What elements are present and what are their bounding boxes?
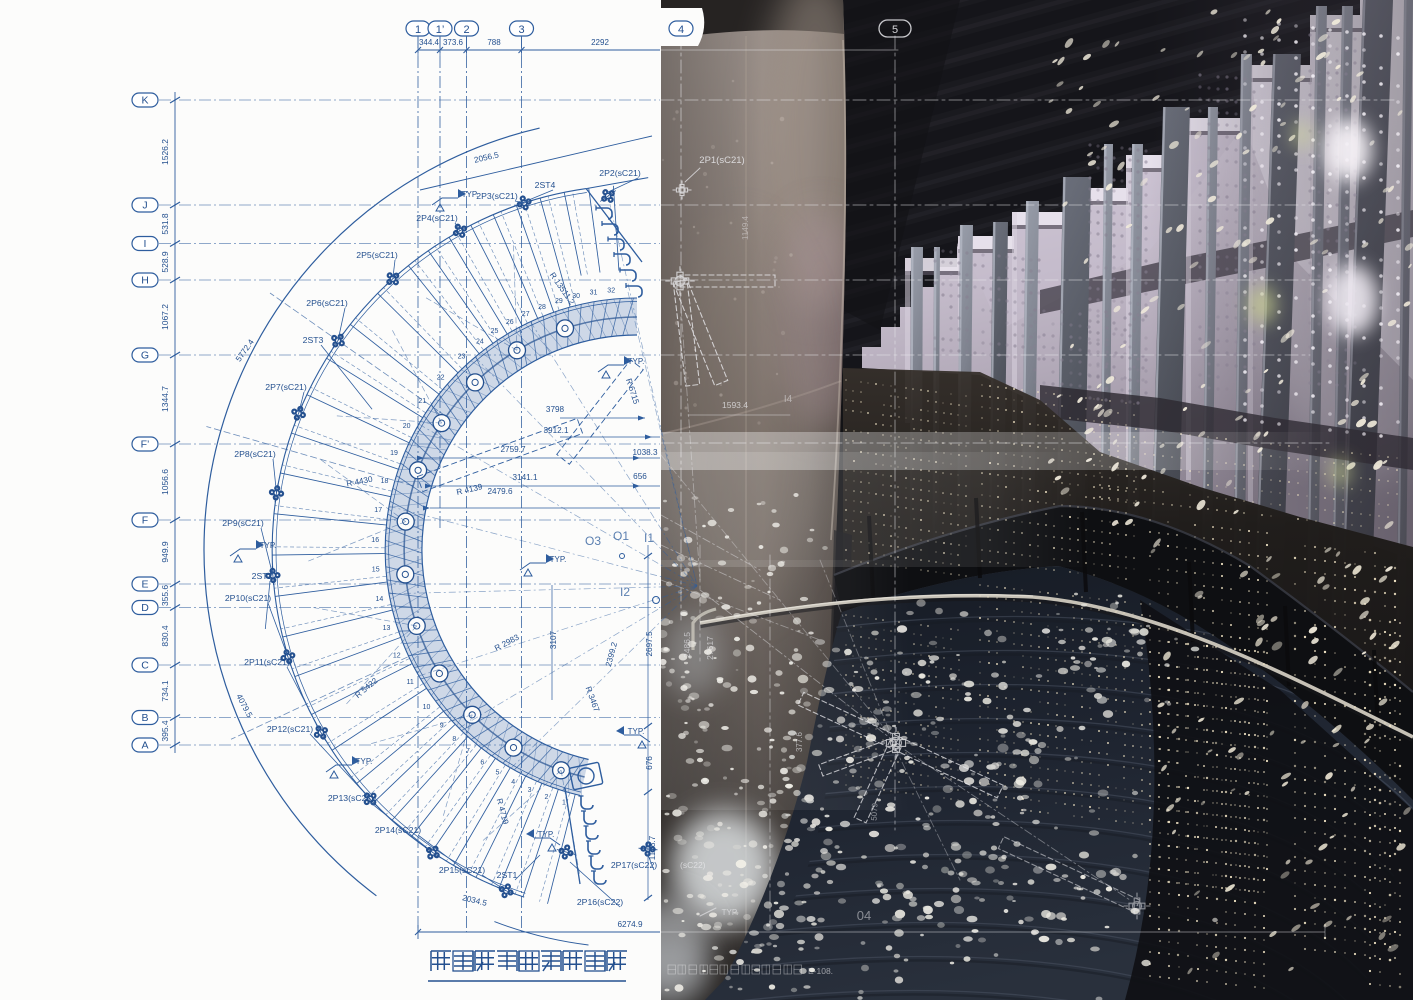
svg-text:2P9(sC21): 2P9(sC21) — [222, 518, 264, 528]
svg-text:1067.2: 1067.2 — [160, 304, 170, 330]
svg-text:(sC22): (sC22) — [680, 860, 706, 870]
svg-text:11: 11 — [407, 679, 414, 686]
svg-text:2P15(sC21): 2P15(sC21) — [439, 865, 485, 875]
svg-text:2P10(sC21): 2P10(sC21) — [225, 593, 271, 603]
svg-text:734.1: 734.1 — [160, 680, 170, 702]
svg-text:I2: I2 — [620, 585, 630, 599]
svg-text:25: 25 — [491, 328, 499, 335]
svg-text:28: 28 — [538, 304, 546, 311]
svg-text:23: 23 — [458, 353, 466, 360]
svg-text:2697.5: 2697.5 — [645, 631, 654, 656]
svg-text:1056.6: 1056.6 — [160, 469, 170, 495]
svg-text:O1: O1 — [613, 529, 629, 543]
svg-text:18: 18 — [381, 478, 389, 485]
svg-text:2P11(sC21): 2P11(sC21) — [244, 657, 290, 667]
svg-text:2ST2: 2ST2 — [252, 571, 273, 581]
svg-text:1593.4: 1593.4 — [722, 400, 748, 410]
svg-text:2P13(sC21): 2P13(sC21) — [328, 793, 374, 803]
svg-text:K: K — [141, 95, 148, 107]
svg-text:6274.9: 6274.9 — [617, 920, 642, 929]
svg-text:2ST3: 2ST3 — [303, 335, 324, 345]
svg-text:6: 6 — [480, 759, 484, 766]
svg-text:2P8(sC21): 2P8(sC21) — [234, 449, 276, 459]
svg-text:656: 656 — [633, 472, 647, 481]
svg-text:22: 22 — [437, 375, 445, 382]
svg-text:I1: I1 — [644, 531, 654, 545]
svg-text:2479.6: 2479.6 — [487, 487, 512, 496]
svg-text:TYP.: TYP. — [722, 908, 739, 917]
svg-text:D: D — [141, 602, 149, 614]
svg-text:TYP.: TYP. — [628, 727, 645, 736]
svg-text:TYP.: TYP. — [462, 190, 479, 199]
svg-text:355.6: 355.6 — [160, 585, 170, 607]
svg-text:2486.5: 2486.5 — [682, 632, 692, 658]
svg-text:04: 04 — [857, 908, 871, 923]
svg-text:2ST1: 2ST1 — [497, 870, 518, 880]
svg-text:1’: 1’ — [436, 24, 445, 36]
svg-text:3141.1: 3141.1 — [512, 473, 537, 482]
svg-text:J: J — [142, 200, 147, 212]
svg-text:B: B — [141, 712, 148, 724]
svg-text:26: 26 — [506, 319, 514, 326]
svg-text:C: C — [141, 660, 149, 672]
svg-text:2P7(sC21): 2P7(sC21) — [265, 382, 307, 392]
svg-text:1038.3: 1038.3 — [632, 448, 657, 457]
svg-text:F: F — [142, 515, 148, 527]
svg-text:2ST4: 2ST4 — [535, 180, 556, 190]
svg-text:4: 4 — [511, 779, 515, 786]
svg-text:10: 10 — [423, 704, 431, 711]
svg-text:1344.7: 1344.7 — [160, 386, 170, 412]
svg-text:2759.7: 2759.7 — [500, 445, 525, 454]
svg-text:3798: 3798 — [546, 405, 565, 414]
svg-text:G: G — [141, 350, 149, 362]
svg-text:2P4(sC21): 2P4(sC21) — [416, 213, 458, 223]
svg-text:TYP.: TYP. — [628, 357, 645, 366]
svg-text:3912.1: 3912.1 — [543, 426, 568, 435]
svg-text:27: 27 — [522, 311, 530, 318]
svg-text:1: 1 — [415, 24, 421, 36]
svg-text:2P6(sC21): 2P6(sC21) — [306, 298, 348, 308]
svg-text:12: 12 — [393, 653, 401, 660]
svg-text:16: 16 — [371, 537, 379, 544]
svg-text:3: 3 — [528, 787, 532, 794]
svg-text:676: 676 — [645, 756, 654, 770]
svg-text:H: H — [141, 275, 149, 287]
svg-text:31: 31 — [590, 290, 598, 297]
svg-text:E-108.: E-108. — [808, 966, 833, 976]
svg-text:2P1(sC21): 2P1(sC21) — [699, 155, 744, 166]
svg-text:2P2(sC21): 2P2(sC21) — [599, 168, 641, 178]
svg-text:27617: 27617 — [705, 636, 715, 660]
svg-text:949.9: 949.9 — [160, 541, 170, 563]
svg-text:20: 20 — [403, 423, 411, 430]
svg-text:2P16(sC22): 2P16(sC22) — [577, 897, 623, 907]
svg-text:5: 5 — [495, 770, 499, 777]
svg-text:377.6: 377.6 — [795, 731, 804, 752]
svg-text:15: 15 — [372, 567, 380, 574]
svg-text:13: 13 — [383, 625, 391, 632]
svg-text:528.9: 528.9 — [160, 251, 170, 273]
svg-text:O3: O3 — [585, 534, 601, 548]
svg-text:395.4: 395.4 — [160, 720, 170, 742]
svg-text:5: 5 — [892, 24, 898, 36]
svg-text:2P5(sC21): 2P5(sC21) — [356, 250, 398, 260]
svg-text:24: 24 — [476, 338, 484, 345]
svg-text:7: 7 — [466, 748, 470, 755]
svg-text:32: 32 — [607, 287, 615, 294]
svg-text:4: 4 — [678, 24, 684, 36]
svg-text:14: 14 — [376, 596, 384, 603]
svg-text:344.4: 344.4 — [419, 38, 440, 47]
svg-text:531.8: 531.8 — [160, 213, 170, 235]
svg-text:19: 19 — [390, 450, 398, 457]
svg-text:29: 29 — [555, 298, 563, 305]
svg-text:F’: F’ — [141, 439, 150, 451]
svg-text:I4: I4 — [784, 394, 793, 405]
svg-text:TYP.: TYP. — [260, 541, 277, 550]
svg-text:830.4: 830.4 — [160, 625, 170, 647]
svg-text:2P12(sC21): 2P12(sC21) — [267, 724, 313, 734]
svg-text:TYP.: TYP. — [356, 757, 373, 766]
svg-text:1: 1 — [562, 800, 566, 807]
svg-text:3: 3 — [518, 24, 524, 36]
svg-text:I: I — [144, 238, 147, 250]
svg-text:1526.2: 1526.2 — [160, 139, 170, 165]
svg-text:373.6: 373.6 — [443, 38, 464, 47]
svg-text:5079: 5079 — [870, 802, 880, 821]
svg-text:8: 8 — [452, 736, 456, 743]
svg-text:TYP.: TYP. — [550, 555, 567, 564]
svg-text:TYP.: TYP. — [538, 830, 555, 839]
svg-text:2P14(sC21): 2P14(sC21) — [375, 825, 421, 835]
svg-text:2: 2 — [545, 794, 549, 801]
svg-text:2P3(sC21): 2P3(sC21) — [476, 191, 518, 201]
svg-text:A: A — [141, 740, 148, 752]
svg-text:1178.7: 1178.7 — [648, 835, 657, 860]
svg-text:17: 17 — [374, 507, 382, 514]
svg-text:2: 2 — [463, 24, 469, 36]
svg-text:E: E — [141, 579, 148, 591]
svg-text:2292: 2292 — [591, 38, 609, 47]
svg-text:1149.4: 1149.4 — [741, 216, 750, 240]
svg-text:788: 788 — [487, 38, 501, 47]
